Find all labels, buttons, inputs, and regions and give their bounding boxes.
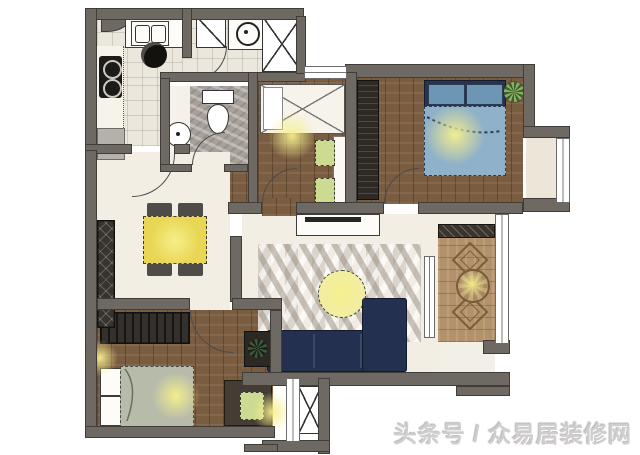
toilet-tank xyxy=(202,90,234,104)
floorplan-image: 头条号 / 众易居装修网 xyxy=(0,0,640,455)
wall-bedroom2-right xyxy=(270,310,282,374)
master-wardrobe xyxy=(357,80,379,200)
leisure-cabinet xyxy=(438,224,495,238)
wall-bathroom-bottom-b xyxy=(224,164,248,172)
glow-dining xyxy=(150,216,200,266)
window-balcony-frame xyxy=(286,378,300,442)
tv-icon xyxy=(305,217,361,222)
side-table xyxy=(244,331,271,367)
wall-study-master-divider xyxy=(345,72,357,204)
dining-tall-cabinet xyxy=(97,220,115,328)
wall-bay-top xyxy=(523,126,570,138)
sofa-chaise xyxy=(362,298,407,372)
washer-center xyxy=(244,30,248,34)
pillow-right xyxy=(466,84,503,105)
wall-bedroom2-bottom xyxy=(85,426,275,438)
bed2-fold-line xyxy=(121,367,151,423)
window-leisure-balcony xyxy=(495,214,509,344)
wall-bathroom-bottom-a xyxy=(160,164,192,172)
watermark-text: 头条号 / 众易居装修网 xyxy=(394,415,632,449)
wall-hall-c xyxy=(418,202,523,214)
washer-drum xyxy=(236,22,260,46)
pillow-left xyxy=(428,84,465,105)
glow-coffee-table xyxy=(316,268,366,318)
wall-kitchen-bottom-b xyxy=(174,144,190,154)
wall-dining-corridor xyxy=(230,236,242,302)
sink-basin-left xyxy=(135,25,150,43)
wall-living-bottom xyxy=(242,372,510,386)
sink-drain xyxy=(176,132,180,136)
burner-1 xyxy=(103,60,122,79)
wall-study-left xyxy=(248,72,258,204)
window-bay xyxy=(556,138,570,203)
glow-master-bed xyxy=(425,105,485,165)
wall-corner-step xyxy=(456,386,510,396)
burner-2 xyxy=(103,79,122,98)
tv-console xyxy=(296,214,380,236)
wall-bedroom2-top-a xyxy=(97,298,190,310)
wall-bathroom-left xyxy=(160,78,170,168)
entry-closet xyxy=(196,16,226,48)
study-chair-1 xyxy=(315,140,335,166)
washing-machine xyxy=(228,16,264,50)
wall-bedroom2-top-b xyxy=(232,298,282,310)
bay-window-seat xyxy=(526,138,556,202)
kitchen-pot xyxy=(141,42,167,68)
window-top xyxy=(304,66,347,79)
master-bed-headboard xyxy=(424,80,506,108)
wall-hall-b xyxy=(296,202,384,214)
wall-bathroom-top xyxy=(160,72,306,82)
wall-master-top xyxy=(345,64,535,78)
wall-hall-a xyxy=(228,202,262,214)
wall-entry-divider xyxy=(182,8,192,58)
wall-left-main xyxy=(85,150,97,438)
side-table-plant-icon xyxy=(248,339,267,358)
wall-top xyxy=(85,8,304,20)
glow-study xyxy=(268,112,316,160)
wall-balcony-step xyxy=(244,444,278,452)
gas-cooktop xyxy=(99,56,122,98)
sofa-seam-1 xyxy=(313,334,315,368)
nightstand-2 xyxy=(100,396,121,426)
sink-basin-right xyxy=(151,25,166,43)
glow-bedroom2-bed xyxy=(152,372,200,420)
plant-icon xyxy=(504,82,524,102)
wall-left-kitchen xyxy=(85,8,97,152)
study-chair-2 xyxy=(315,178,335,204)
glow-rattan xyxy=(459,271,485,297)
partition-living-balcony xyxy=(424,256,435,338)
